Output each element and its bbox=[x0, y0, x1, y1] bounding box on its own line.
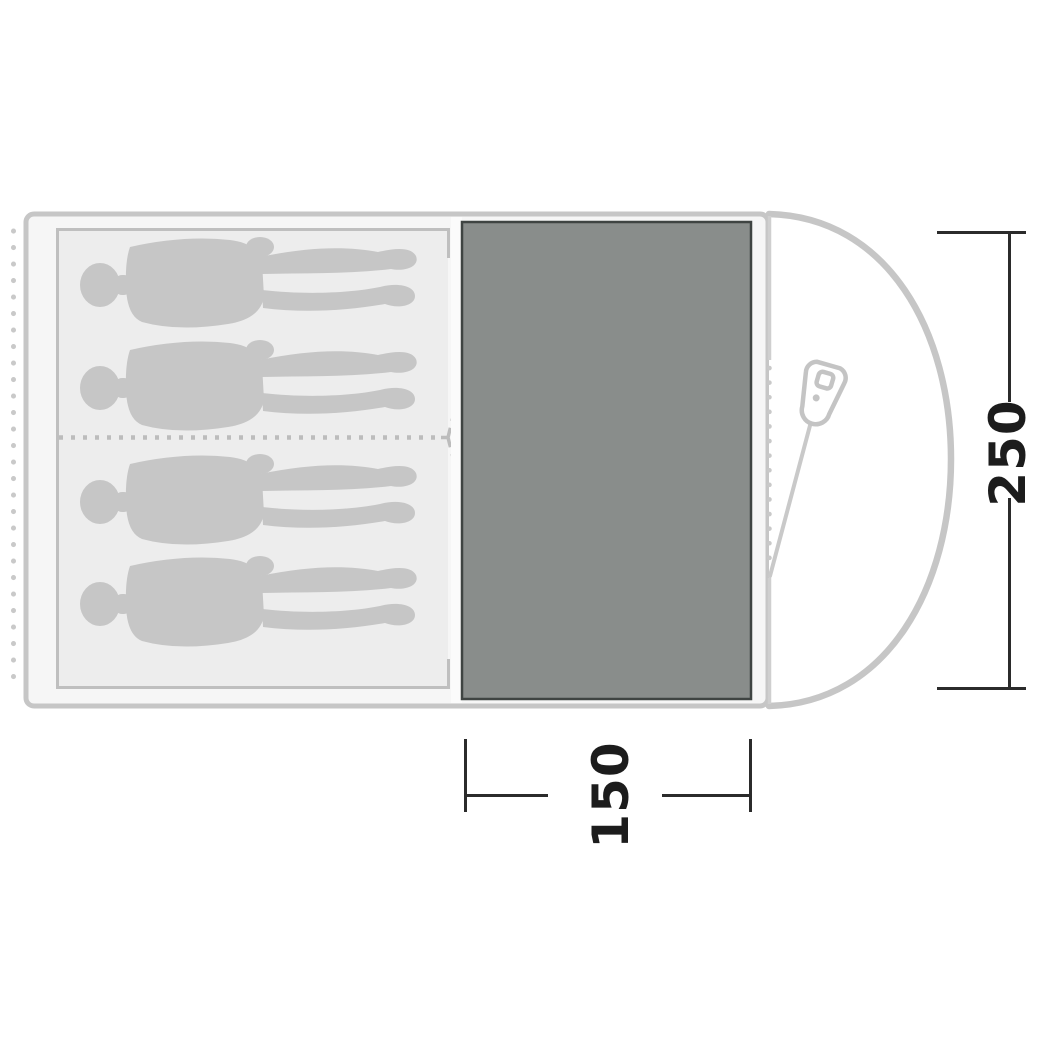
porch-area bbox=[769, 214, 951, 706]
floor-left-gap bbox=[451, 217, 462, 703]
tent-floorplan-page: 250 150 bbox=[0, 0, 1045, 1045]
living-area-floor bbox=[462, 222, 751, 699]
tent-floorplan-diagram bbox=[0, 0, 1045, 1045]
dimension-label-150: 150 bbox=[583, 725, 639, 865]
dimension-label-250: 250 bbox=[980, 383, 1036, 523]
